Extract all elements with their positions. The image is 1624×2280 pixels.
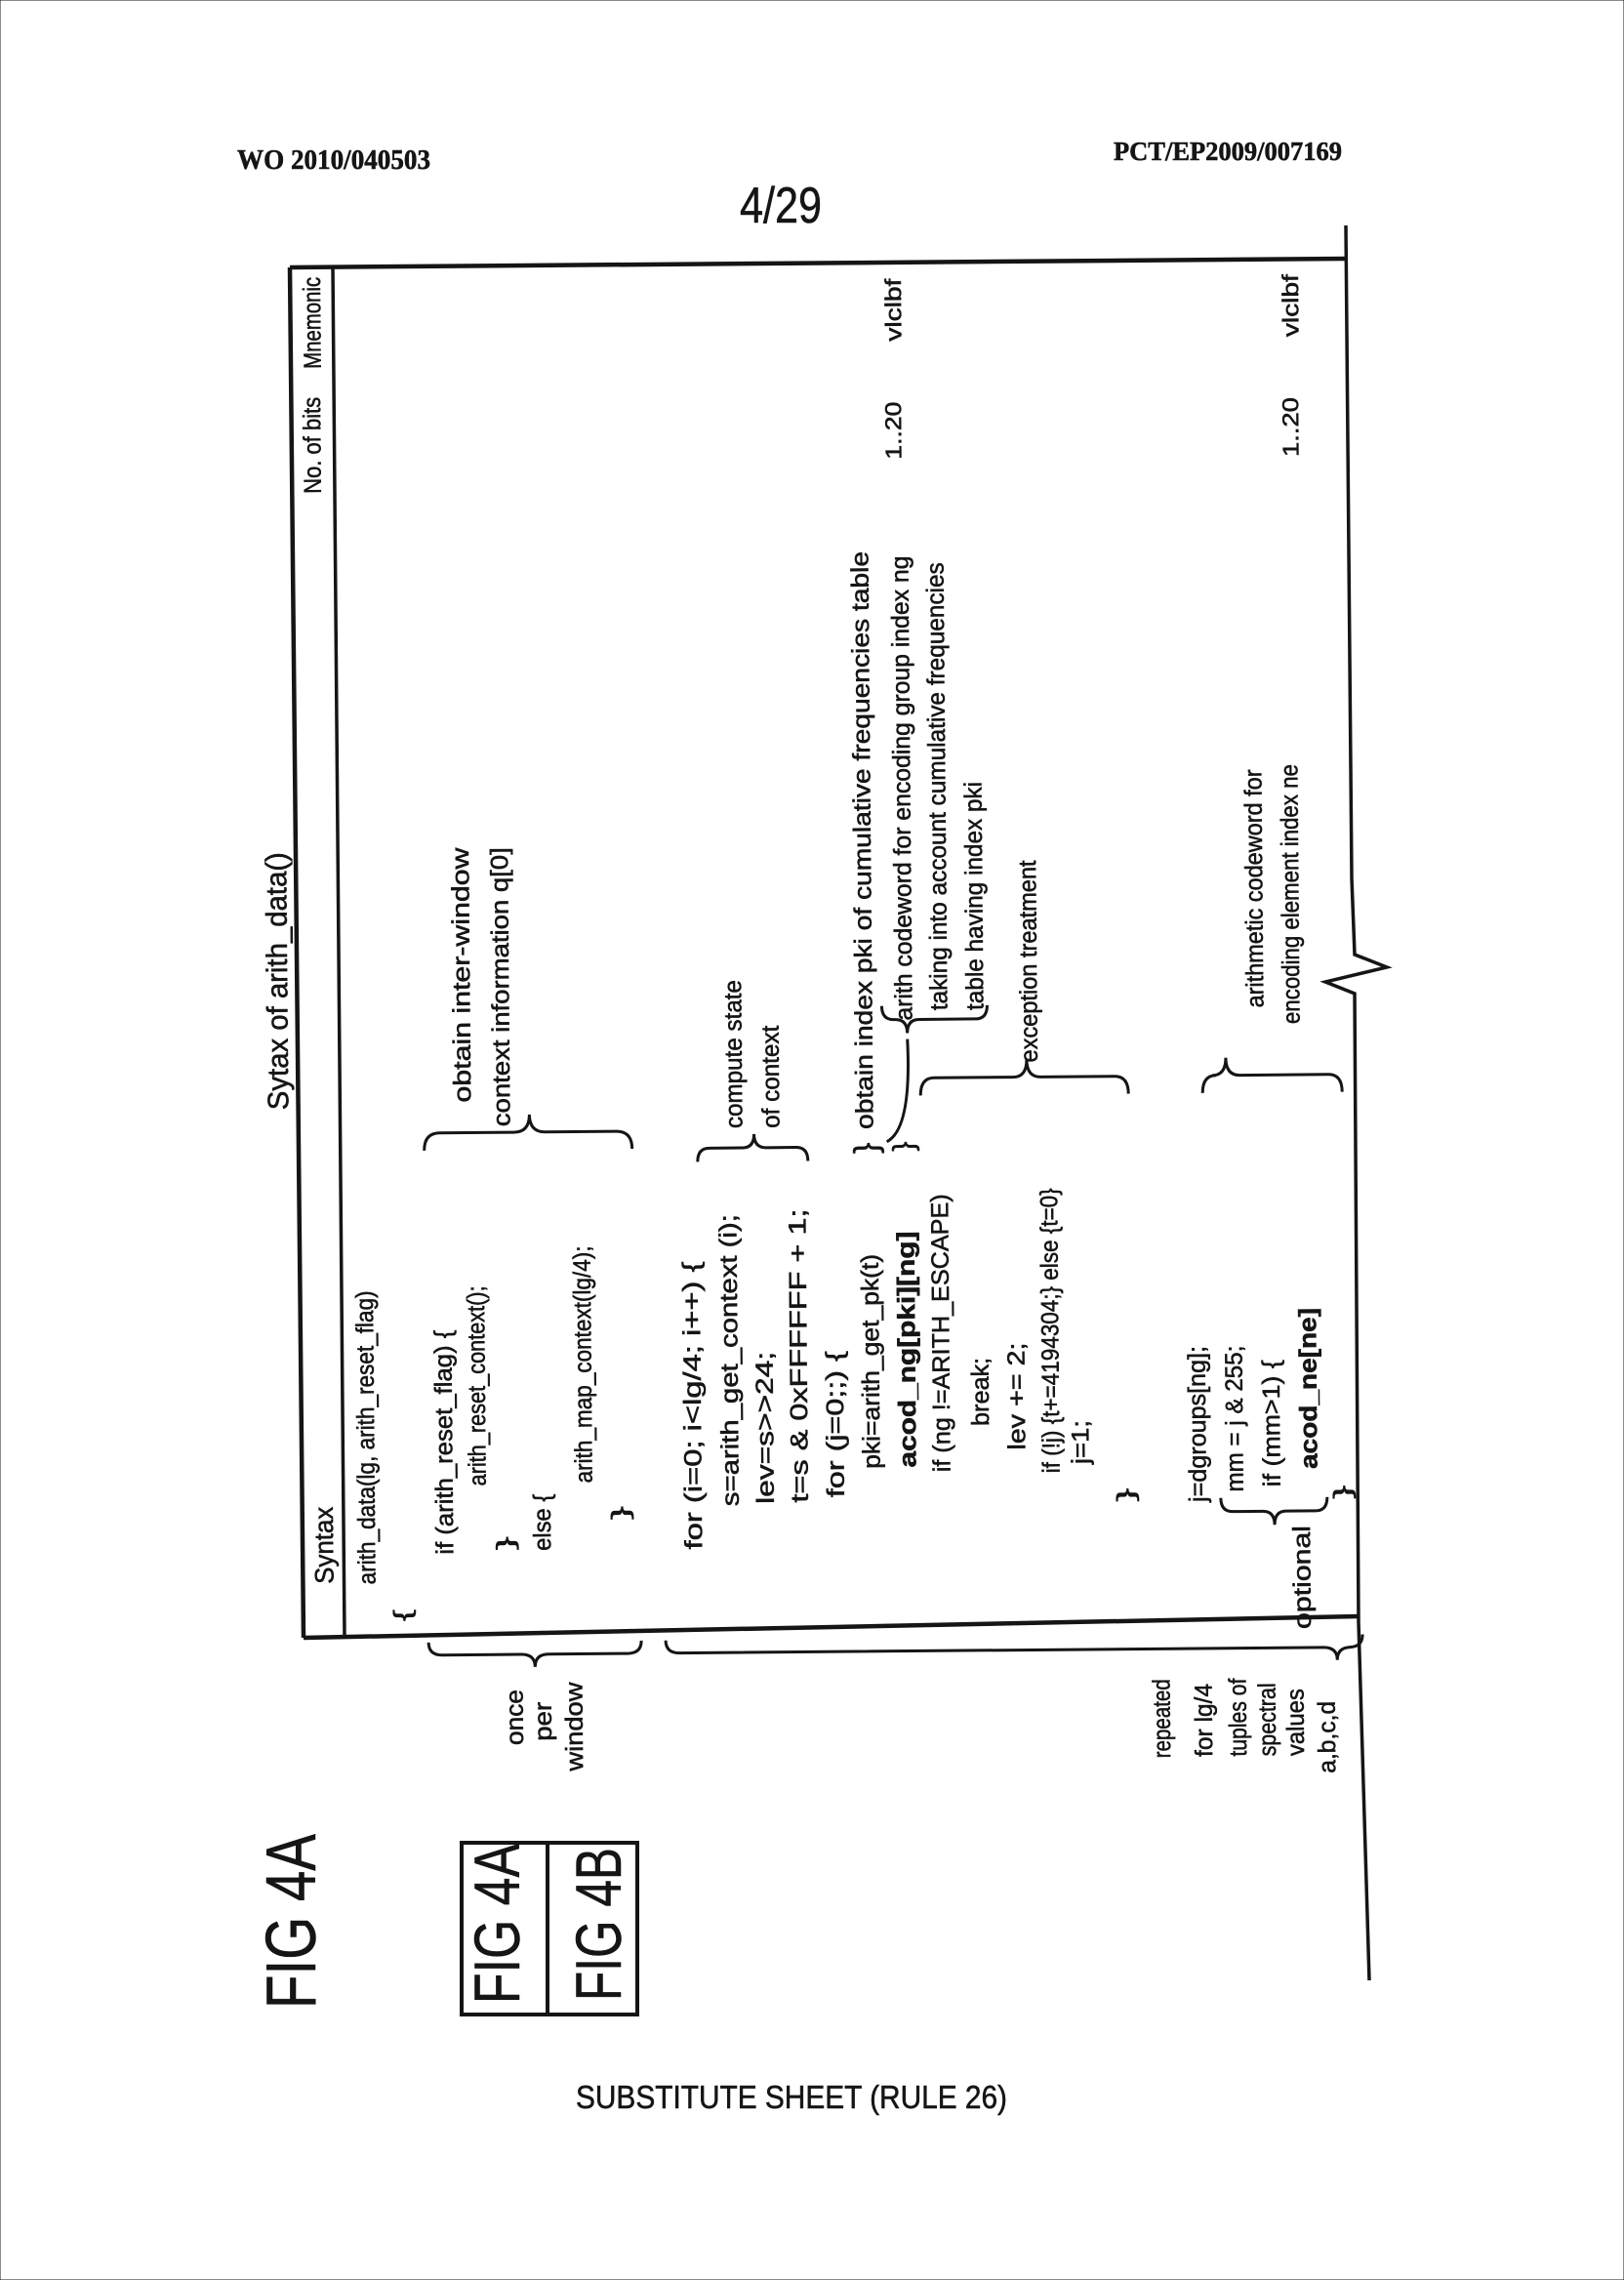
- svg-text:SUBSTITUTE SHEET (RULE 26): SUBSTITUTE SHEET (RULE 26): [576, 2079, 1007, 2115]
- svg-text:if (!j) {t+=4194304;} else {t=: if (!j) {t+=4194304;} else {t=0}: [1035, 1188, 1066, 1473]
- svg-text:Syntax: Syntax: [309, 1506, 340, 1584]
- svg-text:acod_ne[ne]: acod_ne[ne]: [1294, 1308, 1322, 1469]
- svg-text:vlclbf: vlclbf: [1278, 273, 1304, 337]
- svg-text:{: {: [389, 1609, 417, 1621]
- svg-text:PCT/EP2009/007169: PCT/EP2009/007169: [1114, 137, 1342, 166]
- svg-text:for (i=0; i<lg/4; i++) {: for (i=0; i<lg/4; i++) {: [678, 1261, 709, 1549]
- svg-text:No. of bits: No. of bits: [299, 397, 327, 494]
- svg-text:j=dgroups[ng];: j=dgroups[ng];: [1183, 1346, 1211, 1503]
- svg-text:encoding element index ne: encoding element index ne: [1276, 764, 1305, 1024]
- svg-text:}: }: [848, 1142, 885, 1154]
- svg-text:tuples of: tuples of: [1224, 1678, 1252, 1756]
- svg-text:exception treatment: exception treatment: [1014, 860, 1043, 1062]
- svg-text:arith codeword for encoding gr: arith codeword for encoding group index …: [886, 555, 917, 1020]
- svg-text:obtain inter-window: obtain inter-window: [447, 846, 476, 1102]
- svg-text:}: }: [888, 1141, 920, 1151]
- svg-text:lev=s>>24;: lev=s>>24;: [751, 1352, 780, 1504]
- svg-text:1..20: 1..20: [880, 402, 907, 460]
- svg-text:}: }: [607, 1506, 634, 1520]
- svg-text:}: }: [1113, 1487, 1140, 1501]
- svg-text:if (mm>1) {: if (mm>1) {: [1258, 1360, 1286, 1486]
- svg-text:arith_data(lg, arith_reset_fla: arith_data(lg, arith_reset_flag): [351, 1290, 382, 1584]
- svg-text:once: once: [502, 1690, 529, 1745]
- svg-text:arith_map_context(lg/4);: arith_map_context(lg/4);: [569, 1245, 598, 1483]
- svg-text:break;: break;: [967, 1358, 995, 1426]
- svg-text:FIG 4A: FIG 4A: [461, 1844, 533, 2004]
- svg-text:else {: else {: [529, 1494, 557, 1551]
- svg-text:if (arith_reset_flag) {: if (arith_reset_flag) {: [429, 1330, 459, 1555]
- svg-text:obtain index pki of cumulative: obtain index pki of cumulative frequenci…: [846, 551, 878, 1129]
- svg-text:per: per: [530, 1702, 557, 1741]
- svg-text:j=1;: j=1;: [1067, 1420, 1094, 1465]
- svg-text:arithmetic codeword for: arithmetic codeword for: [1239, 769, 1269, 1007]
- svg-text:of context: of context: [757, 1026, 786, 1128]
- svg-text:}: }: [492, 1536, 519, 1550]
- svg-text:FIG 4A: FIG 4A: [253, 1834, 331, 2009]
- svg-text:arith_reset_context();: arith_reset_context();: [463, 1285, 492, 1486]
- svg-text:for (j=0;;) {: for (j=0;;) {: [822, 1351, 850, 1497]
- svg-text:values: values: [1282, 1689, 1311, 1756]
- svg-text:lev += 2;: lev += 2;: [1002, 1342, 1031, 1449]
- svg-text:taking into account cumulative: taking into account cumulative frequenci…: [921, 562, 953, 1010]
- svg-text:vlclbf: vlclbf: [880, 278, 907, 342]
- svg-text:spectral: spectral: [1253, 1683, 1281, 1756]
- svg-text:table having index pki: table having index pki: [959, 782, 989, 1010]
- svg-text:a,b,c,d: a,b,c,d: [1314, 1701, 1342, 1773]
- svg-text:compute state: compute state: [719, 980, 748, 1128]
- svg-text:s=arith_get_context (i);: s=arith_get_context (i);: [714, 1214, 745, 1506]
- svg-text:Sytax of arith_data(): Sytax of arith_data(): [261, 852, 295, 1110]
- svg-text:mm = j & 255;: mm = j & 255;: [1220, 1346, 1248, 1492]
- svg-text:context information q[0]: context information q[0]: [486, 847, 515, 1126]
- svg-text:optional: optional: [1288, 1526, 1317, 1629]
- svg-text:1..20: 1..20: [1278, 397, 1304, 457]
- svg-text:Mnemonic: Mnemonic: [299, 277, 327, 369]
- svg-text:t=s & 0xFFFFFF + 1;: t=s & 0xFFFFFF + 1;: [784, 1208, 814, 1502]
- svg-text:WO 2010/040503: WO 2010/040503: [237, 145, 430, 176]
- svg-text:for lg/4: for lg/4: [1190, 1684, 1218, 1757]
- svg-text:pki=arith_get_pk(t): pki=arith_get_pk(t): [857, 1254, 886, 1469]
- svg-text:window: window: [560, 1681, 589, 1771]
- svg-text:if (ng !=ARITH_ESCAPE): if (ng !=ARITH_ESCAPE): [926, 1194, 955, 1472]
- svg-text:repeated: repeated: [1148, 1679, 1176, 1758]
- svg-text:FIG 4B: FIG 4B: [562, 1848, 634, 2001]
- svg-text:}: }: [1329, 1486, 1357, 1499]
- svg-text:4/29: 4/29: [740, 178, 822, 234]
- svg-text:acod_ng[pki][ng]: acod_ng[pki][ng]: [892, 1231, 921, 1467]
